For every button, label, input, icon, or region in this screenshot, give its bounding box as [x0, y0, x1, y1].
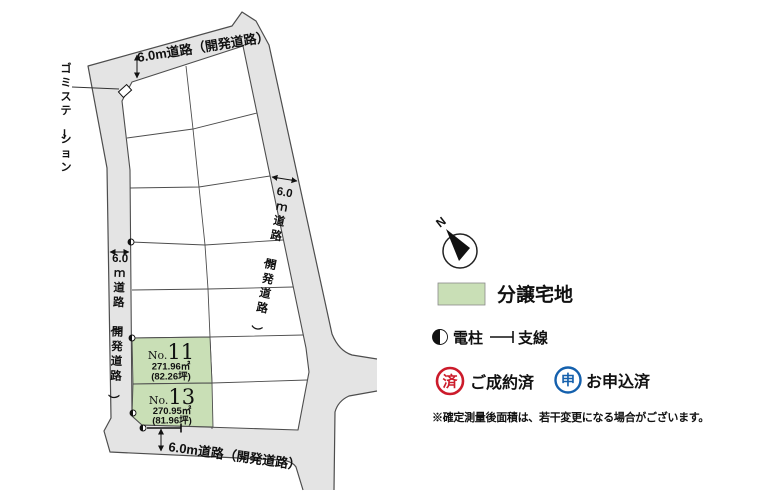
site-plan-map: No.11 271.96㎡ (82.26坪) No.13 270.95㎡ (81…: [0, 0, 760, 500]
lot-11-area-tsubo: (82.26坪): [151, 371, 191, 383]
pole-icon: [140, 425, 146, 431]
lot-13-area-tsubo: (81.96坪): [152, 415, 192, 427]
legend-wire-label: 支線: [517, 329, 548, 347]
legend: N 分譲宅地 電柱 支線 済 ご成約済 申 お申込済 ※確定測量後面積は、若干変…: [432, 214, 709, 424]
legend-sold: 済 ご成約済: [437, 368, 535, 394]
survey-note: ※確定測量後面積は、若干変更になる場合がございます。: [432, 410, 709, 424]
legend-applied: 申 お申込済: [556, 368, 652, 393]
pole-icon: [130, 410, 136, 416]
legend-wire: 支線: [490, 329, 548, 347]
north-compass-icon: N: [433, 214, 477, 268]
legend-lot: 分譲宅地: [438, 283, 573, 306]
legend-sold-label: ご成約済: [470, 373, 535, 392]
legend-lot-label: 分譲宅地: [497, 283, 573, 306]
garbage-station-label: ゴミステーション: [58, 61, 72, 174]
legend-lot-swatch: [438, 283, 485, 305]
sold-stamp-char: 済: [442, 373, 458, 391]
pole-icon: [128, 239, 134, 245]
applied-stamp-char: 申: [561, 372, 575, 388]
legend-applied-label: お申込済: [586, 372, 651, 391]
legend-pole: 電柱: [433, 329, 484, 347]
road-outline-branch: [334, 391, 377, 490]
site-plan-page: No.11 271.96㎡ (82.26坪) No.13 270.95㎡ (81…: [0, 0, 760, 500]
legend-pole-label: 電柱: [453, 329, 483, 347]
pole-icon: [129, 335, 135, 341]
north-label: N: [433, 214, 448, 230]
